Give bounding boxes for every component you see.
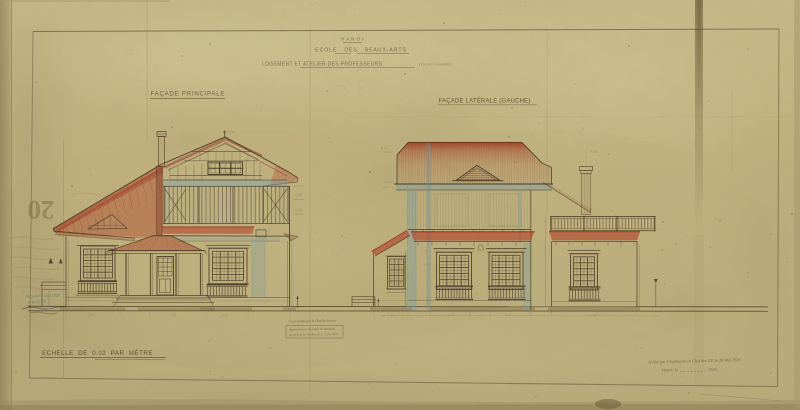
svg-text:21.10: 21.10 bbox=[457, 291, 465, 295]
svg-text:5.8: 5.8 bbox=[383, 185, 388, 189]
svg-text:+9.10: +9.10 bbox=[589, 150, 598, 154]
svg-text:ECHELLE DE 0.02 PAR MÈTRE: ECHELLE DE 0.02 PAR MÈTRE bbox=[42, 350, 153, 357]
svg-text:3.05: 3.05 bbox=[296, 208, 303, 212]
svg-text:3.20: 3.20 bbox=[505, 313, 511, 317]
svg-text:Vu et vérifié par le Chef du S: Vu et vérifié par le Chef du Service bbox=[289, 319, 337, 324]
svg-text:FAÇADE PRINCIPALE: FAÇADE PRINCIPALE bbox=[151, 91, 226, 98]
svg-text:3.40: 3.40 bbox=[222, 313, 228, 317]
svg-text:8.10: 8.10 bbox=[381, 147, 387, 151]
svg-text:ECOLE DES BEAUX-ARTS: ECOLE DES BEAUX-ARTS bbox=[315, 48, 407, 54]
svg-text:nº 8142 T.P.: nº 8142 T.P. bbox=[28, 300, 46, 305]
svg-text:s.15: s.15 bbox=[421, 249, 427, 253]
svg-text:Approuvé par décision du Résid: Approuvé par décision du Résident bbox=[288, 327, 335, 332]
svg-text:3.10: 3.10 bbox=[170, 313, 176, 317]
svg-text:1.10: 1.10 bbox=[388, 313, 394, 317]
svg-text:4.20: 4.20 bbox=[295, 193, 302, 197]
svg-text:+0.15: +0.15 bbox=[422, 263, 430, 267]
svg-text:2.45: 2.45 bbox=[590, 313, 596, 317]
svg-text:H A N O I: H A N O I bbox=[341, 37, 364, 42]
svg-text:3.40: 3.40 bbox=[88, 313, 94, 317]
svg-text:FAÇADE LATÉRALE (GAUCHE): FAÇADE LATÉRALE (GAUCHE) bbox=[439, 97, 531, 104]
svg-text:(Vue de l’ensemble): (Vue de l’ensemble) bbox=[419, 61, 453, 66]
svg-text:LOGEMENT ET ATELIER DES PROFES: LOGEMENT ET ATELIER DES PROFESSEURS bbox=[262, 61, 383, 67]
svg-text:20: 20 bbox=[28, 195, 55, 225]
svg-text:3.25: 3.25 bbox=[448, 313, 454, 317]
svg-text:9.50: 9.50 bbox=[228, 131, 235, 135]
svg-text:1926.: 1926. bbox=[708, 367, 718, 372]
